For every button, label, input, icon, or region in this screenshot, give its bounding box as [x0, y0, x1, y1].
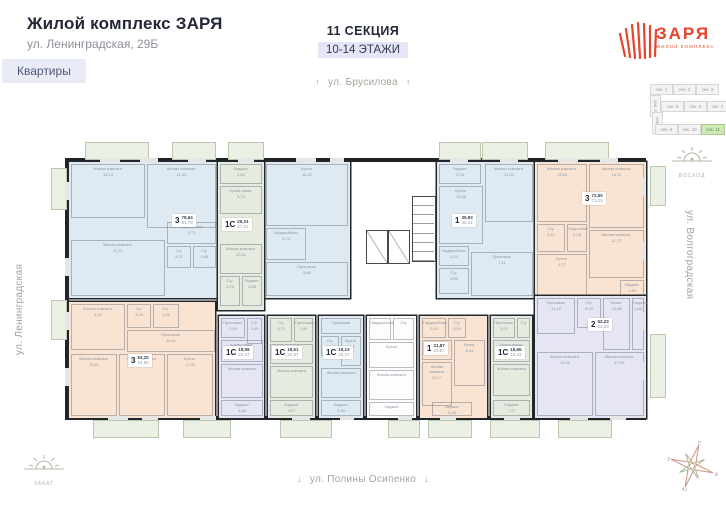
room-area: 13,48 — [440, 193, 482, 199]
minimap--6[interactable]: сек. 6 — [684, 101, 707, 112]
room-area: 2,55 — [222, 325, 244, 331]
room-area: 2,08 — [568, 231, 586, 237]
elevator-shaft — [388, 230, 410, 264]
floors-badge: 10-14 ЭТАЖИ — [318, 42, 408, 58]
room-С/у: С/у 3,04 — [448, 318, 466, 338]
room-area: 13,60 — [538, 171, 586, 177]
room-area: 10,61 — [128, 337, 214, 343]
minimap--7[interactable]: сек. 7 — [707, 101, 726, 112]
room-Подсобная: Подсобная 2,08 — [567, 224, 587, 252]
room-area: 16,11 — [590, 171, 643, 177]
room-area: 3,20 — [494, 325, 514, 331]
room-area: 3,73 — [271, 325, 291, 331]
room-area: 5,03 — [578, 305, 600, 311]
room-name: Кухня — [370, 343, 413, 349]
room-Жилая комната: Жилая комната 8,22 — [71, 304, 125, 350]
window — [450, 158, 468, 162]
room-Жилая комната: Жилая комната — [493, 364, 530, 396]
compass-south: Ю — [681, 486, 688, 492]
room-Прихожая: Прихожая 11,10 — [537, 298, 575, 334]
apartment-type: 1 — [427, 344, 431, 353]
room-С/у: С/у 4,37 — [167, 246, 191, 268]
window — [142, 416, 158, 420]
room-area: 4,57 — [271, 407, 312, 413]
room-С/у: С/у 3,69 — [153, 304, 179, 328]
window — [642, 178, 646, 196]
room-area: 13,14 — [72, 171, 144, 177]
room-name: Лоджия — [370, 403, 413, 409]
room-name: Подсобная — [568, 225, 586, 231]
room-Прихожая: Прихожая 10,61 — [127, 330, 215, 352]
window — [504, 416, 520, 420]
window — [100, 158, 120, 162]
compass-west: З — [666, 456, 671, 463]
apartment-label-1С[interactable]: 1С 25,31 27,21 — [222, 218, 252, 231]
apartment-area-full: 64,85 — [137, 360, 148, 365]
room-name: Прихожая — [494, 319, 514, 325]
room-area: 11,90 — [486, 171, 532, 177]
room-name: Гардеробная — [423, 319, 445, 325]
room-area: 5,67 — [538, 231, 564, 237]
room-area: 4,86 — [194, 253, 215, 259]
window — [188, 158, 206, 162]
room-area: 12,02 — [538, 359, 592, 365]
room-area: 12,17 — [423, 374, 451, 380]
balcony — [183, 420, 231, 438]
room-area: 4,58 — [222, 407, 262, 413]
room-area: 9,80 — [267, 269, 347, 275]
arrow-up-icon: ↑ — [307, 77, 328, 87]
room-Жилая комната: Жилая комната 13,14 — [71, 164, 145, 218]
room-area: 4,88 — [243, 283, 261, 289]
apartment-label-1С[interactable]: 1С 18,51 22,37 — [272, 346, 302, 359]
street-label-right: ул. Волгоградская — [684, 210, 695, 350]
apartment-label-3[interactable]: 3 63,20 64,85 — [128, 354, 152, 367]
apartment-type: 1 — [455, 216, 459, 225]
apartment-area-full: 20,37 — [238, 352, 249, 357]
room-name: Жилая комната — [222, 365, 262, 371]
room-name: Прихожая — [322, 319, 360, 325]
room-area: 4,37 — [168, 253, 190, 259]
minimap--5[interactable]: сек. 5 — [661, 101, 684, 112]
logo-wordmark: ЗАРЯ — [656, 24, 710, 44]
room-Жилая комната: Жилая комната 11,90 — [485, 164, 533, 222]
apartment-area-full: 73,25 — [591, 198, 602, 203]
apartment-area-full: 27,21 — [237, 224, 248, 229]
window — [65, 368, 69, 386]
room-name: Гардеробная — [440, 247, 468, 253]
room-Прихожая: Прихожая — [321, 318, 361, 334]
room-Лоджия: Лоджия 4,58 — [221, 400, 263, 416]
room-area: 2,60 — [221, 171, 261, 177]
balcony — [428, 420, 472, 438]
room-Гардеробная: Гардеробная 2,03 — [422, 318, 446, 338]
room-Лоджия: Лоджия 5,45 — [432, 402, 472, 416]
room-Прихожая: Прихожая 7,11 — [471, 252, 533, 296]
room-area: 13,61 — [72, 361, 116, 367]
room-area: 2,03 — [440, 253, 468, 259]
balcony — [650, 166, 666, 206]
room-area: 17,09 — [168, 361, 212, 367]
apartment-area-full: 20,37 — [338, 352, 349, 357]
room-area: 15,48 — [604, 305, 629, 311]
room-area: 17,41 — [72, 247, 164, 253]
room-Жилая комната: Жилая комната 10,61 — [220, 244, 262, 274]
apartment-area-full: 22,37 — [287, 352, 298, 357]
room-name: Лоджия — [243, 277, 261, 283]
room-Лоджия: Лоджия 2,60 — [220, 164, 262, 184]
room-area: 3,76 — [440, 171, 480, 177]
room-Кухня-ниша: Кухня-ниша 5,70 — [220, 186, 262, 214]
arrow-up-icon: ↑ — [398, 77, 419, 87]
apartment-area-full: 23,67 — [433, 348, 444, 353]
room-area: 8,34 — [455, 347, 484, 353]
window — [330, 158, 344, 162]
room-Лоджия: Лоджия 4,57 — [270, 400, 313, 416]
window — [238, 158, 254, 162]
apartment-type: 1С — [275, 348, 285, 357]
room-area: 11,77 — [590, 237, 643, 243]
room-area: 1,49 — [621, 287, 643, 293]
apartment-label-1С[interactable]: 1С 18,59 20,37 — [223, 346, 253, 359]
apartment-type: 1С — [326, 348, 336, 357]
street-label-top: ↑ул. Брусилова↑ — [0, 77, 726, 88]
room-area: 2,03 — [423, 325, 445, 331]
room-Жилая комната: Жилая комната 12,17 — [422, 362, 452, 406]
apartment-area-full: 53,03 — [597, 324, 608, 329]
window — [140, 158, 158, 162]
room-area: 7,72 — [494, 407, 529, 413]
apartment-label-3[interactable]: 3 72,50 73,25 — [582, 192, 606, 205]
balcony — [558, 420, 612, 438]
street-label-left: ул. Ленинградская — [14, 225, 25, 355]
room-name: С/у — [518, 319, 529, 325]
sunrise-indicator: ВОСХОД — [668, 142, 716, 179]
room-Лоджия: Лоджия 7,72 — [493, 400, 530, 416]
balcony — [650, 334, 666, 398]
room-area: 3,04 — [449, 325, 465, 331]
room-name: Прихожая — [222, 319, 244, 325]
window — [642, 362, 646, 380]
room-name: Жилая комната — [221, 245, 261, 251]
room-Жилая комната: Жилая комната 13,61 — [71, 354, 117, 416]
room-Прихожая: Прихожая 2,55 — [221, 318, 245, 338]
window — [340, 416, 354, 420]
room-area: 3,69 — [154, 311, 178, 317]
floorplan-page: { "header": { "title": "Жилой комплекс З… — [0, 0, 726, 514]
apartment-label-1С[interactable]: 1С 15,65 16,42 — [495, 346, 525, 359]
elevator-shaft — [366, 230, 388, 264]
room-area: 16,32 — [267, 171, 347, 177]
room-Кухня: Кухня 8,34 — [454, 340, 485, 386]
room-area: 8,22 — [72, 311, 124, 317]
apartment-label-1[interactable]: 1 35,93 36,41 — [452, 214, 476, 227]
room-Лоджия: Лоджия 5,45 — [321, 400, 361, 416]
arrow-down-icon: ↓ — [416, 474, 437, 484]
minimap--3[interactable]: сек. 3 — [696, 84, 719, 95]
room-Лоджия: Лоджия — [369, 402, 414, 416]
apartment-label-3[interactable]: 3 78,64 81,78 — [172, 214, 196, 227]
window — [610, 416, 626, 420]
window — [200, 416, 216, 420]
room-С/у: С/у 5,67 — [537, 224, 565, 252]
logo-subtitle: ЖИЛОЙ КОМПЛЕКС — [656, 44, 715, 49]
window — [296, 158, 316, 162]
minimap--11[interactable]: сек. 11 — [701, 124, 725, 135]
room-name: Прихожая — [295, 319, 312, 325]
room-Кухня: Кухня 17,09 — [167, 354, 213, 416]
compass-north: С — [697, 440, 703, 447]
window — [558, 158, 578, 162]
balcony — [490, 420, 540, 438]
room-С/у: С/у 4,55 — [439, 268, 469, 294]
window — [292, 416, 310, 420]
room-Жилая комната: Жилая комната 17,93 — [595, 352, 644, 416]
apartment-type: 1С — [498, 348, 508, 357]
apartment-area-full: 81,78 — [181, 220, 192, 225]
room-Гардеробная: Гардеробная — [369, 318, 391, 340]
compass-east: В — [714, 472, 718, 479]
room-area: 5,74 — [267, 235, 305, 241]
apartment-type: 3 — [131, 356, 135, 365]
apartment-type: 2 — [591, 320, 595, 329]
sunset-icon — [20, 450, 68, 476]
sunset-label: ЗАКАТ — [20, 481, 68, 487]
room-area: 11,10 — [538, 305, 574, 311]
room-Жилая комната: Жилая комната — [369, 370, 414, 400]
apartment-type: 3 — [585, 194, 589, 203]
apartment-type: 1С — [225, 220, 235, 229]
apartment-type: 3 — [175, 216, 179, 225]
room-name: Жилая комната — [423, 363, 451, 374]
room-Жилая комната: Жилая комната — [321, 368, 361, 398]
room-name: Жилая комната — [322, 369, 360, 375]
minimap--2[interactable]: сек. 2 — [673, 84, 696, 95]
room-Гардеробная: Гардеробная 2,03 — [439, 246, 469, 266]
room-area: 5,70 — [221, 193, 261, 199]
compass: С В Ю З — [666, 440, 718, 496]
window — [642, 242, 646, 260]
room-Прихожая: Прихожая 3,40 — [294, 318, 313, 342]
room-Прихожая: Прихожая 9,80 — [266, 262, 348, 296]
room-С/у: С/у 4,75 — [220, 276, 240, 306]
apartment-area-full: 36,41 — [461, 220, 472, 225]
room-name: Жилая комната — [494, 365, 529, 371]
room-Жилая комната: Жилая комната — [270, 366, 313, 398]
sunset-indicator: ЗАКАТ — [20, 450, 68, 487]
room-area: 3,49 — [248, 325, 261, 331]
room-Кухня: Кухня — [369, 342, 414, 368]
room-Кухня: Кухня 16,32 — [266, 164, 348, 226]
room-area: 4,75 — [221, 283, 239, 289]
room-area: 9,77 — [538, 261, 586, 267]
window — [108, 416, 128, 420]
minimap--1[interactable]: сек. 1 — [650, 84, 673, 95]
room-area: 5,45 — [433, 409, 471, 415]
room-Лоджия: Лоджия 3,76 — [439, 164, 481, 184]
room-area: 17,93 — [596, 359, 643, 365]
room-name: С/у — [394, 319, 413, 325]
room-С/у: С/у 4,86 — [193, 246, 216, 268]
window — [500, 158, 518, 162]
minimap--10[interactable]: сек. 10 — [678, 124, 701, 135]
room-Лоджия: Лоджия 4,88 — [242, 276, 262, 306]
balcony — [388, 420, 420, 438]
room-name: Гардеробная — [370, 319, 390, 325]
window — [398, 416, 412, 420]
room-area: 3,71 — [168, 229, 215, 235]
room-area: 7,11 — [472, 259, 532, 265]
room-Жилая комната: Жилая комната 12,02 — [537, 352, 593, 416]
room-Жилая комната: Жилая комната — [221, 364, 263, 398]
apartment-label-1С[interactable]: 1С 18,13 20,37 — [323, 346, 353, 359]
window — [570, 416, 588, 420]
room-area: 4,55 — [440, 275, 468, 281]
room-С/у: С/у 3,73 — [270, 318, 292, 342]
window — [600, 158, 618, 162]
room-Жилая комната: Жилая комната 17,41 — [71, 240, 165, 296]
room-Жилая комната: Жилая комната 11,77 — [589, 230, 644, 278]
apartment-label-2[interactable]: 2 52,23 53,03 — [588, 318, 612, 331]
sunrise-label: ВОСХОД — [668, 173, 716, 179]
room-Жилая комната: Жилая комната 13,60 — [537, 164, 587, 222]
room-name: Жилая комната — [271, 367, 312, 373]
room-С/у: С/у — [517, 318, 530, 338]
room-area: 5,45 — [322, 407, 360, 413]
room-name: Лоджия — [633, 299, 643, 305]
window — [65, 182, 69, 200]
apartment-area-full: 16,42 — [510, 352, 521, 357]
room-area: 3,40 — [295, 325, 312, 331]
street-label-bottom: ↓ул. Полины Осипенко↓ — [0, 474, 726, 485]
window — [440, 416, 456, 420]
window — [642, 312, 646, 330]
apartment-label-1[interactable]: 1 21,87 23,67 — [424, 342, 448, 355]
room-Гардеробная: Гардеробная 5,74 — [266, 228, 306, 260]
balcony — [280, 420, 332, 438]
staircase — [412, 196, 436, 262]
window — [65, 258, 69, 276]
window — [65, 312, 69, 330]
balcony — [93, 420, 159, 438]
room-С/у: С/у 3,04 — [127, 304, 151, 328]
apartment-type: 1С — [226, 348, 236, 357]
room-area: 1,88 — [633, 305, 643, 311]
room-area: 10,61 — [221, 251, 261, 257]
sunrise-icon — [668, 142, 716, 168]
room-area: 11,92 — [148, 171, 215, 177]
room-area: 3,04 — [128, 311, 150, 317]
arrow-down-icon: ↓ — [289, 474, 310, 484]
minimap--9[interactable]: сек. 9 — [655, 124, 678, 135]
room-С/у: С/у — [393, 318, 414, 340]
room-Прихожая: Прихожая 3,20 — [493, 318, 515, 338]
compass-rose-icon: С В Ю З — [666, 440, 718, 492]
room-name: Жилая комната — [370, 371, 413, 377]
